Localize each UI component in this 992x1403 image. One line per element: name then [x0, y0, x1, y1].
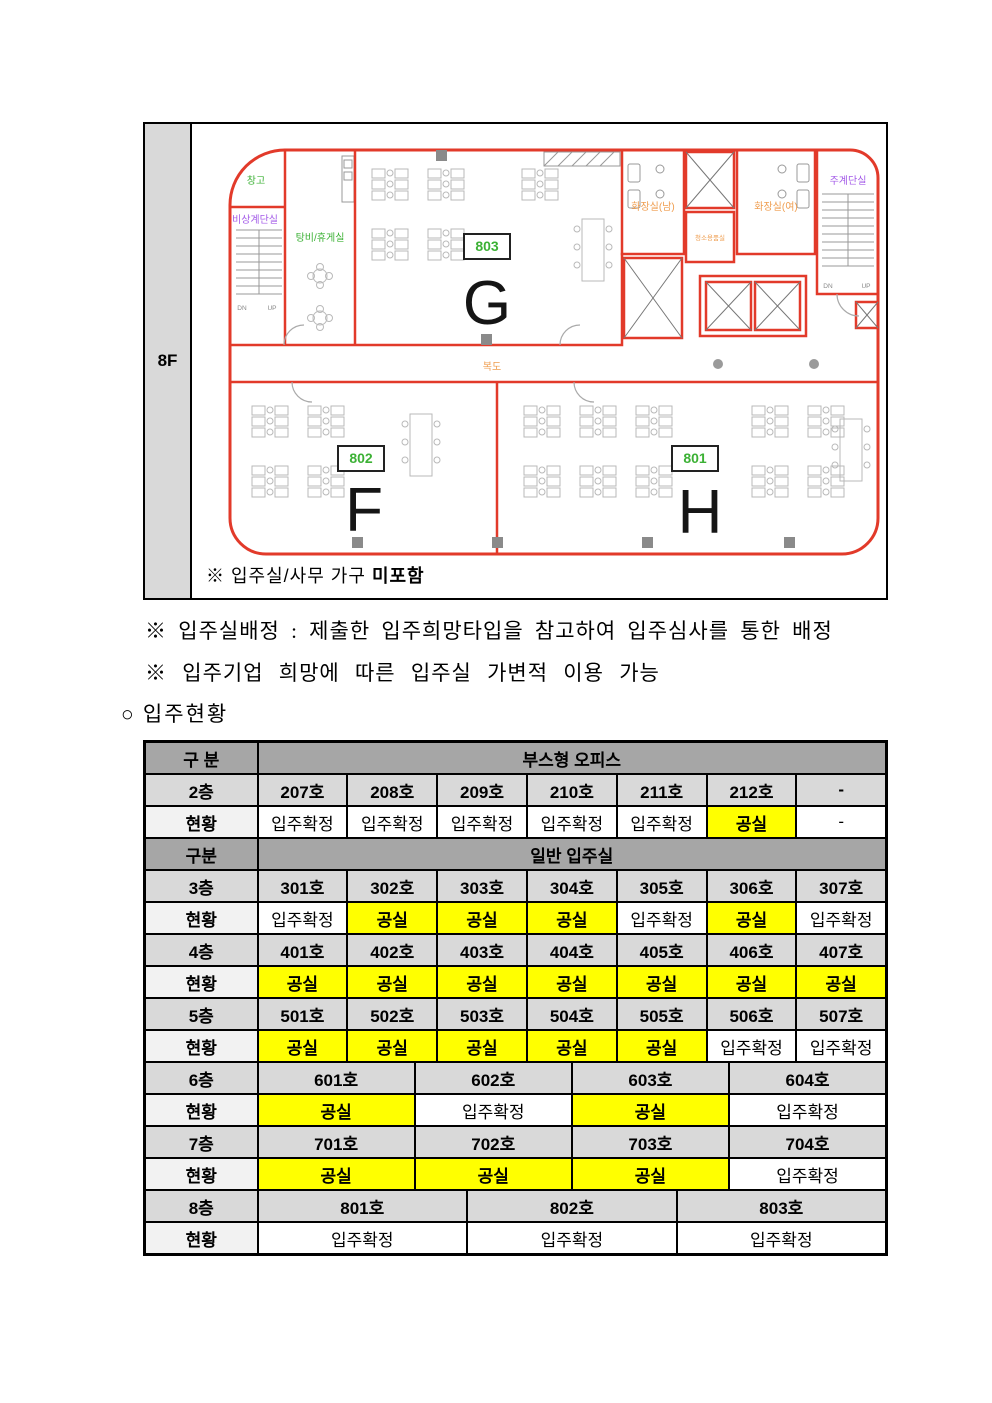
room-cell: 703호: [572, 1126, 729, 1158]
status-cell: 입주확정: [729, 1158, 886, 1190]
table-row: 7층701호702호703호704호: [145, 1126, 887, 1158]
room-cell: 506호: [707, 998, 797, 1030]
room-cell: 207호: [258, 774, 348, 806]
status-cell: 공실: [572, 1094, 729, 1126]
table-row: 현황공실공실공실입주확정: [145, 1158, 887, 1190]
pantry-label: 탕비/휴게실: [296, 232, 345, 244]
room-g-letter: G: [463, 269, 511, 338]
table-row: 6층601호602호603호604호: [145, 1062, 887, 1094]
room-cell: 701호: [258, 1126, 415, 1158]
floorplan-figure: 8F: [143, 122, 888, 600]
status-cell: 입주확정: [258, 806, 348, 838]
row-label: 5층: [145, 998, 258, 1030]
storage-label: 창고: [247, 175, 265, 187]
table-body: 구 분부스형 오피스2층207호208호209호210호211호212호-현황입…: [145, 742, 887, 1255]
room-cell: 505호: [617, 998, 707, 1030]
status-cell: 공실: [707, 806, 797, 838]
status-cell: 공실: [572, 1158, 729, 1190]
row-label: 4층: [145, 934, 258, 966]
room-cell: 406호: [707, 934, 797, 966]
status-cell: 공실: [527, 1030, 617, 1062]
status-cell: 입주확정: [677, 1222, 887, 1255]
room-cell: 307호: [796, 870, 886, 902]
status-cell: 입주확정: [347, 806, 437, 838]
room-cell: 404호: [527, 934, 617, 966]
status-cell: 입주확정: [437, 806, 527, 838]
status-cell: 입주확정: [258, 1222, 468, 1255]
floor-plan: 창고 비상계단실 DN UP 탕비/휴게실 화장실(남) 청소용품실 화장실(여…: [192, 124, 886, 564]
table-row: 현황입주확정입주확정입주확정입주확정입주확정공실-: [145, 806, 887, 838]
room-cell: 212호: [707, 774, 797, 806]
room-cell: 211호: [617, 774, 707, 806]
status-cell: 입주확정: [258, 902, 348, 934]
figure-note-text: ※ 입주실/사무 가구: [206, 566, 372, 586]
row-label: 현황: [145, 1094, 258, 1126]
table-row: 현황공실공실공실공실공실입주확정입주확정: [145, 1030, 887, 1062]
figure-note: ※ 입주실/사무 가구 미포함: [206, 562, 425, 588]
status-cell: 공실: [707, 966, 797, 998]
status-cell: 입주확정: [415, 1094, 572, 1126]
row-label: 3층: [145, 870, 258, 902]
status-cell: 공실: [437, 902, 527, 934]
occupancy-table: 구 분부스형 오피스2층207호208호209호210호211호212호-현황입…: [143, 740, 888, 1256]
row-label: 2층: [145, 774, 258, 806]
room-cell: 208호: [347, 774, 437, 806]
main-stairs-label: 주계단실: [830, 175, 867, 187]
status-cell: 공실: [707, 902, 797, 934]
room-f-letter: F: [345, 476, 383, 545]
status-cell: 공실: [415, 1158, 572, 1190]
row-label: 현황: [145, 1158, 258, 1190]
floorplan-body: 창고 비상계단실 DN UP 탕비/휴게실 화장실(남) 청소용품실 화장실(여…: [192, 124, 886, 598]
table-row: 4층401호402호403호404호405호406호407호: [145, 934, 887, 966]
status-cell: 입주확정: [617, 902, 707, 934]
room-cell: 305호: [617, 870, 707, 902]
status-cell: 공실: [437, 1030, 527, 1062]
row-label: 8층: [145, 1190, 258, 1222]
status-cell: 입주확정: [796, 1030, 886, 1062]
status-cell: 입주확정: [617, 806, 707, 838]
row-label: 현황: [145, 966, 258, 998]
toilet-women-label: 화장실(여): [754, 201, 797, 213]
cleaning-room-label: 청소용품실: [695, 233, 725, 242]
room-cell: 507호: [796, 998, 886, 1030]
table-row: 현황공실입주확정공실입주확정: [145, 1094, 887, 1126]
status-cell: 공실: [527, 966, 617, 998]
status-cell: 공실: [527, 902, 617, 934]
room-cell: 407호: [796, 934, 886, 966]
table-row: 3층301호302호303호304호305호306호307호: [145, 870, 887, 902]
room-cell: 601호: [258, 1062, 415, 1094]
note-flexible-use: ※ 입주기업 희망에 따른 입주실 가변적 이용 가능: [145, 657, 905, 687]
room-h-letter: H: [678, 478, 723, 547]
emergency-stairs-label: 비상계단실: [232, 214, 278, 226]
room-g-number: 803: [475, 238, 499, 254]
status-cell: 입주확정: [467, 1222, 677, 1255]
room-cell: 302호: [347, 870, 437, 902]
note-room-assignment: ※ 입주실배정 : 제출한 입주희망타입을 참고하여 입주심사를 통한 배정: [145, 615, 905, 645]
room-cell: -: [796, 774, 886, 806]
room-cell: 704호: [729, 1126, 886, 1158]
header-value: 일반 입주실: [258, 838, 887, 870]
room-cell: 209호: [437, 774, 527, 806]
room-cell: 501호: [258, 998, 348, 1030]
corridor-label: 복도: [483, 361, 501, 373]
table-row: 8층801호802호803호: [145, 1190, 887, 1222]
room-cell: 210호: [527, 774, 617, 806]
room-f-number: 802: [349, 450, 373, 466]
row-label: 구 분: [145, 742, 258, 775]
table-row: 5층501호502호503호504호505호506호507호: [145, 998, 887, 1030]
figure-note-bold: 미포함: [372, 566, 425, 586]
status-cell: 공실: [796, 966, 886, 998]
section-title: ○ 입주현황: [121, 698, 228, 728]
up-label-2: UP: [861, 283, 870, 290]
floor-label: 8F: [145, 124, 192, 598]
room-cell: 306호: [707, 870, 797, 902]
table-row: 현황공실공실공실공실공실공실공실: [145, 966, 887, 998]
status-cell: 입주확정: [707, 1030, 797, 1062]
status-cell: 공실: [617, 966, 707, 998]
room-cell: 301호: [258, 870, 348, 902]
table-row: 구 분부스형 오피스: [145, 742, 887, 775]
room-cell: 403호: [437, 934, 527, 966]
status-cell: -: [796, 806, 886, 838]
header-value: 부스형 오피스: [258, 742, 887, 775]
table-row: 구분일반 입주실: [145, 838, 887, 870]
status-cell: 공실: [617, 1030, 707, 1062]
status-cell: 입주확정: [729, 1094, 886, 1126]
room-cell: 803호: [677, 1190, 887, 1222]
row-label: 현황: [145, 1222, 258, 1255]
status-cell: 공실: [258, 1158, 415, 1190]
status-cell: 공실: [258, 966, 348, 998]
room-cell: 401호: [258, 934, 348, 966]
table-row: 현황입주확정공실공실공실입주확정공실입주확정: [145, 902, 887, 934]
room-cell: 402호: [347, 934, 437, 966]
room-cell: 405호: [617, 934, 707, 966]
document-page: { "floor_plan": { "floor_label": "8F", "…: [0, 0, 992, 1403]
dn-label-2: DN: [823, 283, 833, 290]
room-h-number: 801: [683, 450, 707, 466]
room-cell: 303호: [437, 870, 527, 902]
table-row: 2층207호208호209호210호211호212호-: [145, 774, 887, 806]
status-cell: 공실: [347, 902, 437, 934]
room-cell: 503호: [437, 998, 527, 1030]
toilet-men-label: 화장실(남): [631, 201, 674, 213]
status-cell: 공실: [347, 966, 437, 998]
room-cell: 702호: [415, 1126, 572, 1158]
row-label: 구분: [145, 838, 258, 870]
dn-label: DN: [237, 305, 247, 312]
status-cell: 입주확정: [527, 806, 617, 838]
table-row: 현황입주확정입주확정입주확정: [145, 1222, 887, 1255]
room-cell: 304호: [527, 870, 617, 902]
status-cell: 공실: [258, 1094, 415, 1126]
room-cell: 502호: [347, 998, 437, 1030]
row-label: 7층: [145, 1126, 258, 1158]
row-label: 현황: [145, 1030, 258, 1062]
status-cell: 공실: [437, 966, 527, 998]
row-label: 현황: [145, 806, 258, 838]
status-cell: 공실: [258, 1030, 348, 1062]
up-label: UP: [267, 305, 276, 312]
row-label: 현황: [145, 902, 258, 934]
room-cell: 801호: [258, 1190, 468, 1222]
row-label: 6층: [145, 1062, 258, 1094]
room-cell: 802호: [467, 1190, 677, 1222]
status-cell: 입주확정: [796, 902, 886, 934]
occupancy-table-wrap: 구 분부스형 오피스2층207호208호209호210호211호212호-현황입…: [143, 740, 888, 1256]
room-cell: 602호: [415, 1062, 572, 1094]
room-cell: 603호: [572, 1062, 729, 1094]
status-cell: 공실: [347, 1030, 437, 1062]
room-cell: 604호: [729, 1062, 886, 1094]
room-cell: 504호: [527, 998, 617, 1030]
